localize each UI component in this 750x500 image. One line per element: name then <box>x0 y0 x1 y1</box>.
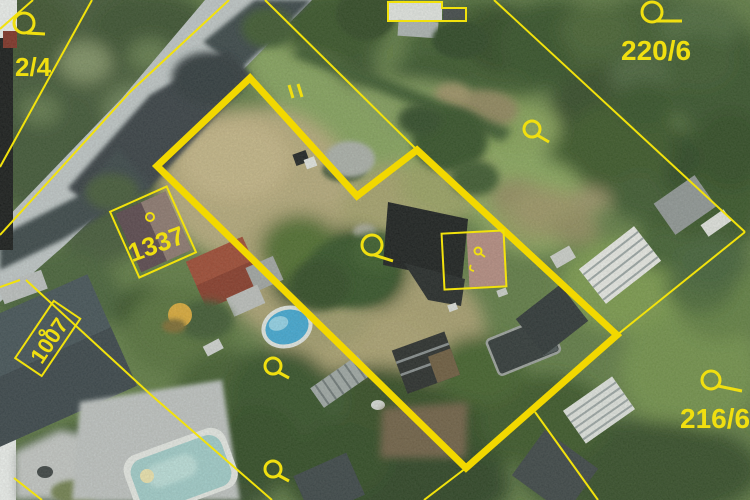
svg-text:216/6: 216/6 <box>680 403 750 434</box>
svg-text:2/4: 2/4 <box>15 52 52 82</box>
svg-text:220/6: 220/6 <box>621 35 691 66</box>
